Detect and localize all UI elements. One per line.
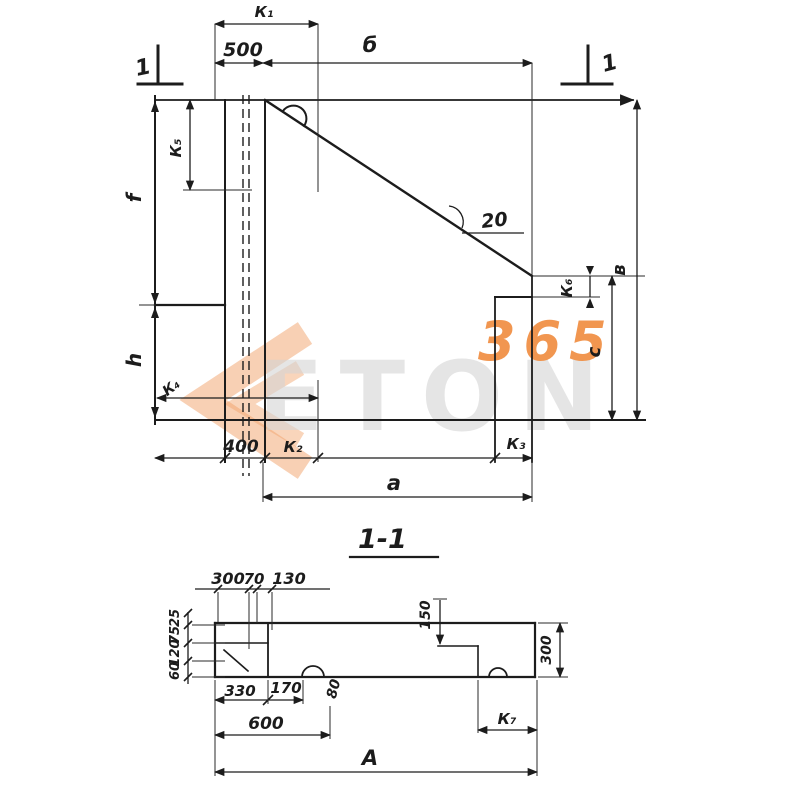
watermark-number: 365: [478, 310, 615, 373]
dim-top-300-label: 300: [211, 569, 244, 588]
dim-600: 600: [215, 706, 330, 739]
dim-v-label: в: [609, 264, 630, 275]
dim-top-70-label: 70: [244, 570, 265, 588]
dim-top-130-label: 130: [272, 569, 305, 588]
section-outline: [215, 623, 535, 677]
dim-a-small-label: а: [387, 471, 401, 495]
slope-label: 20: [480, 208, 509, 233]
dim-330-label: 330: [224, 682, 255, 700]
dim-k5-label: К₅: [167, 139, 185, 158]
dim-f: f: [122, 101, 159, 305]
dim-k7-label: К₇: [498, 710, 517, 728]
section-marker-right: 1: [562, 46, 620, 84]
dim-500: 500: [215, 39, 263, 63]
section-marker-left-label: 1: [133, 54, 153, 82]
dim-600-label: 600: [248, 714, 284, 734]
dim-chain-left: 25 75 120 60: [168, 609, 225, 684]
dim-400-label: 400: [222, 437, 259, 457]
dim-500-label: 500: [223, 39, 263, 61]
dim-80-label: 80: [324, 677, 345, 700]
dim-150-label: 150: [418, 600, 434, 629]
dim-right-300-label: 300: [539, 635, 555, 664]
dim-k7: К₇: [478, 680, 537, 733]
bottom-notch-left: [302, 666, 324, 677]
dim-k5: К₅: [167, 100, 252, 190]
dim-c-label: с: [584, 346, 605, 357]
dim-left-60-label: 60: [168, 662, 183, 680]
dim-150: 150: [418, 599, 447, 644]
technical-drawing: ETON 365 1 1: [0, 0, 800, 800]
chamfer-line: [224, 650, 248, 671]
dim-170-label: 170: [270, 679, 301, 697]
dim-k1-label: К₁: [255, 3, 274, 21]
dim-k6-label: К₆: [558, 278, 576, 297]
dim-f-label: f: [122, 191, 146, 202]
section-view: 1-1 300 7: [168, 524, 568, 776]
section-title-label: 1-1: [358, 524, 407, 555]
section-title: 1-1: [350, 524, 438, 557]
section-marker-right-label: 1: [599, 50, 620, 78]
dim-h-label: h: [122, 353, 146, 367]
section-marker-left: 1: [133, 46, 182, 84]
dim-A-label: А: [360, 746, 378, 770]
dim-h: h: [122, 307, 159, 418]
drawing-page: ETON 365 1 1: [0, 0, 800, 800]
dim-k6: К₆: [558, 266, 594, 308]
dim-b-top: б: [263, 33, 532, 276]
lifting-loop: [283, 106, 306, 126]
dim-right-300: 300: [538, 623, 568, 677]
bottom-notch-right: [489, 668, 507, 677]
dim-chain-330-170: 330 170: [215, 679, 303, 705]
dim-k3-label: К₃: [507, 435, 526, 453]
dim-k2-label: К₂: [284, 438, 303, 456]
dim-k4-label: К₄: [160, 376, 184, 399]
dim-left-25-label: 25: [168, 609, 183, 627]
dim-b-top-label: б: [363, 33, 378, 57]
